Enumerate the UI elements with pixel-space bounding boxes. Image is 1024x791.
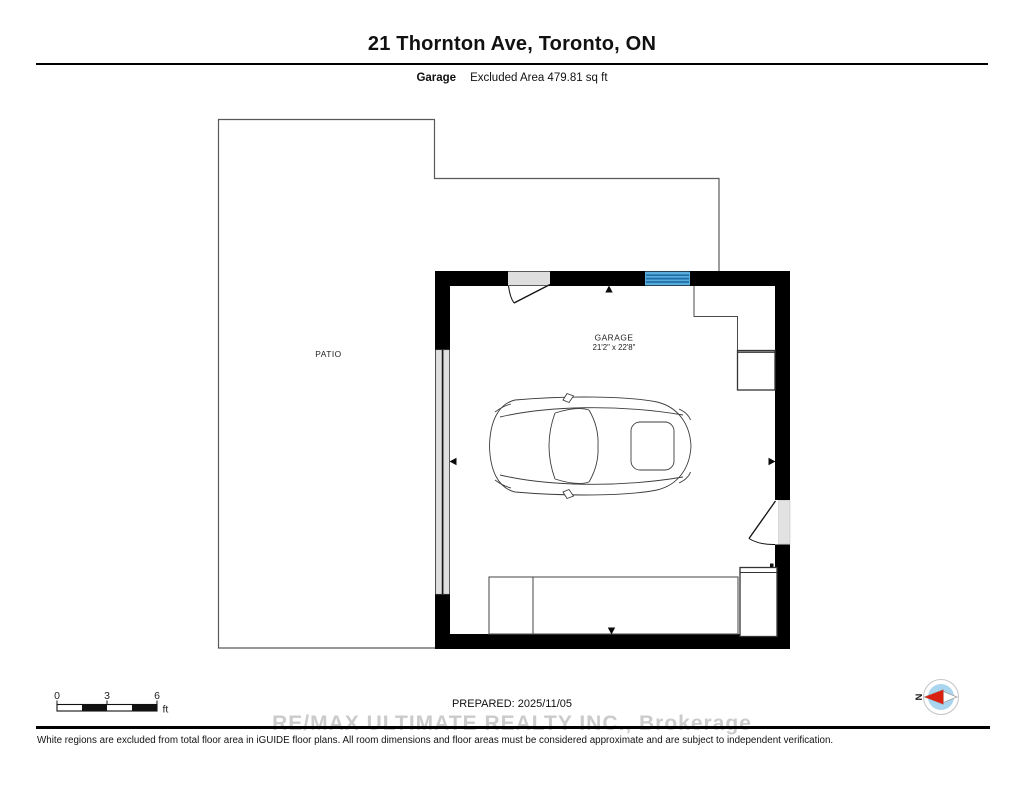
garage-label: GARAGE: [595, 333, 634, 343]
storage-unit: [740, 564, 777, 637]
floor-label: Garage: [416, 72, 456, 84]
workbench: [489, 577, 738, 634]
interior-niche: [694, 286, 738, 350]
page-title: 21 Thornton Ave, Toronto, ON: [0, 33, 1024, 56]
car-icon: [490, 394, 692, 499]
entry-door-top: [508, 272, 550, 303]
utility-cabinet: [738, 351, 776, 391]
garage-dimensions: 21'2" x 22'8": [593, 343, 636, 352]
patio-outline: [219, 120, 720, 649]
floorplan-drawing: PATIO GARAGE 21'2" x 22'8" 0 3 6 ft N: [0, 0, 1024, 791]
prepared-date: PREPARED: 2025/11/05: [0, 698, 1024, 710]
arrow-up-icon: [605, 286, 612, 293]
title-divider: [36, 63, 988, 65]
patio-window-left: [436, 350, 450, 594]
disclaimer-text: White regions are excluded from total fl…: [37, 735, 997, 746]
floorplan-page: RE/MAX ULTIMATE REALTY INC., Brokerage 2…: [0, 0, 1024, 791]
footer-divider: [36, 726, 990, 729]
side-door-right: [749, 500, 790, 545]
floor-subtitle: Garage Excluded Area 479.81 sq ft: [0, 72, 1024, 84]
patio-label: PATIO: [315, 349, 341, 359]
excluded-area-note: Excluded Area 479.81 sq ft: [470, 72, 607, 84]
garage-window-top: [645, 272, 690, 286]
arrow-right-icon: [769, 458, 776, 465]
arrow-left-icon: [450, 458, 457, 465]
